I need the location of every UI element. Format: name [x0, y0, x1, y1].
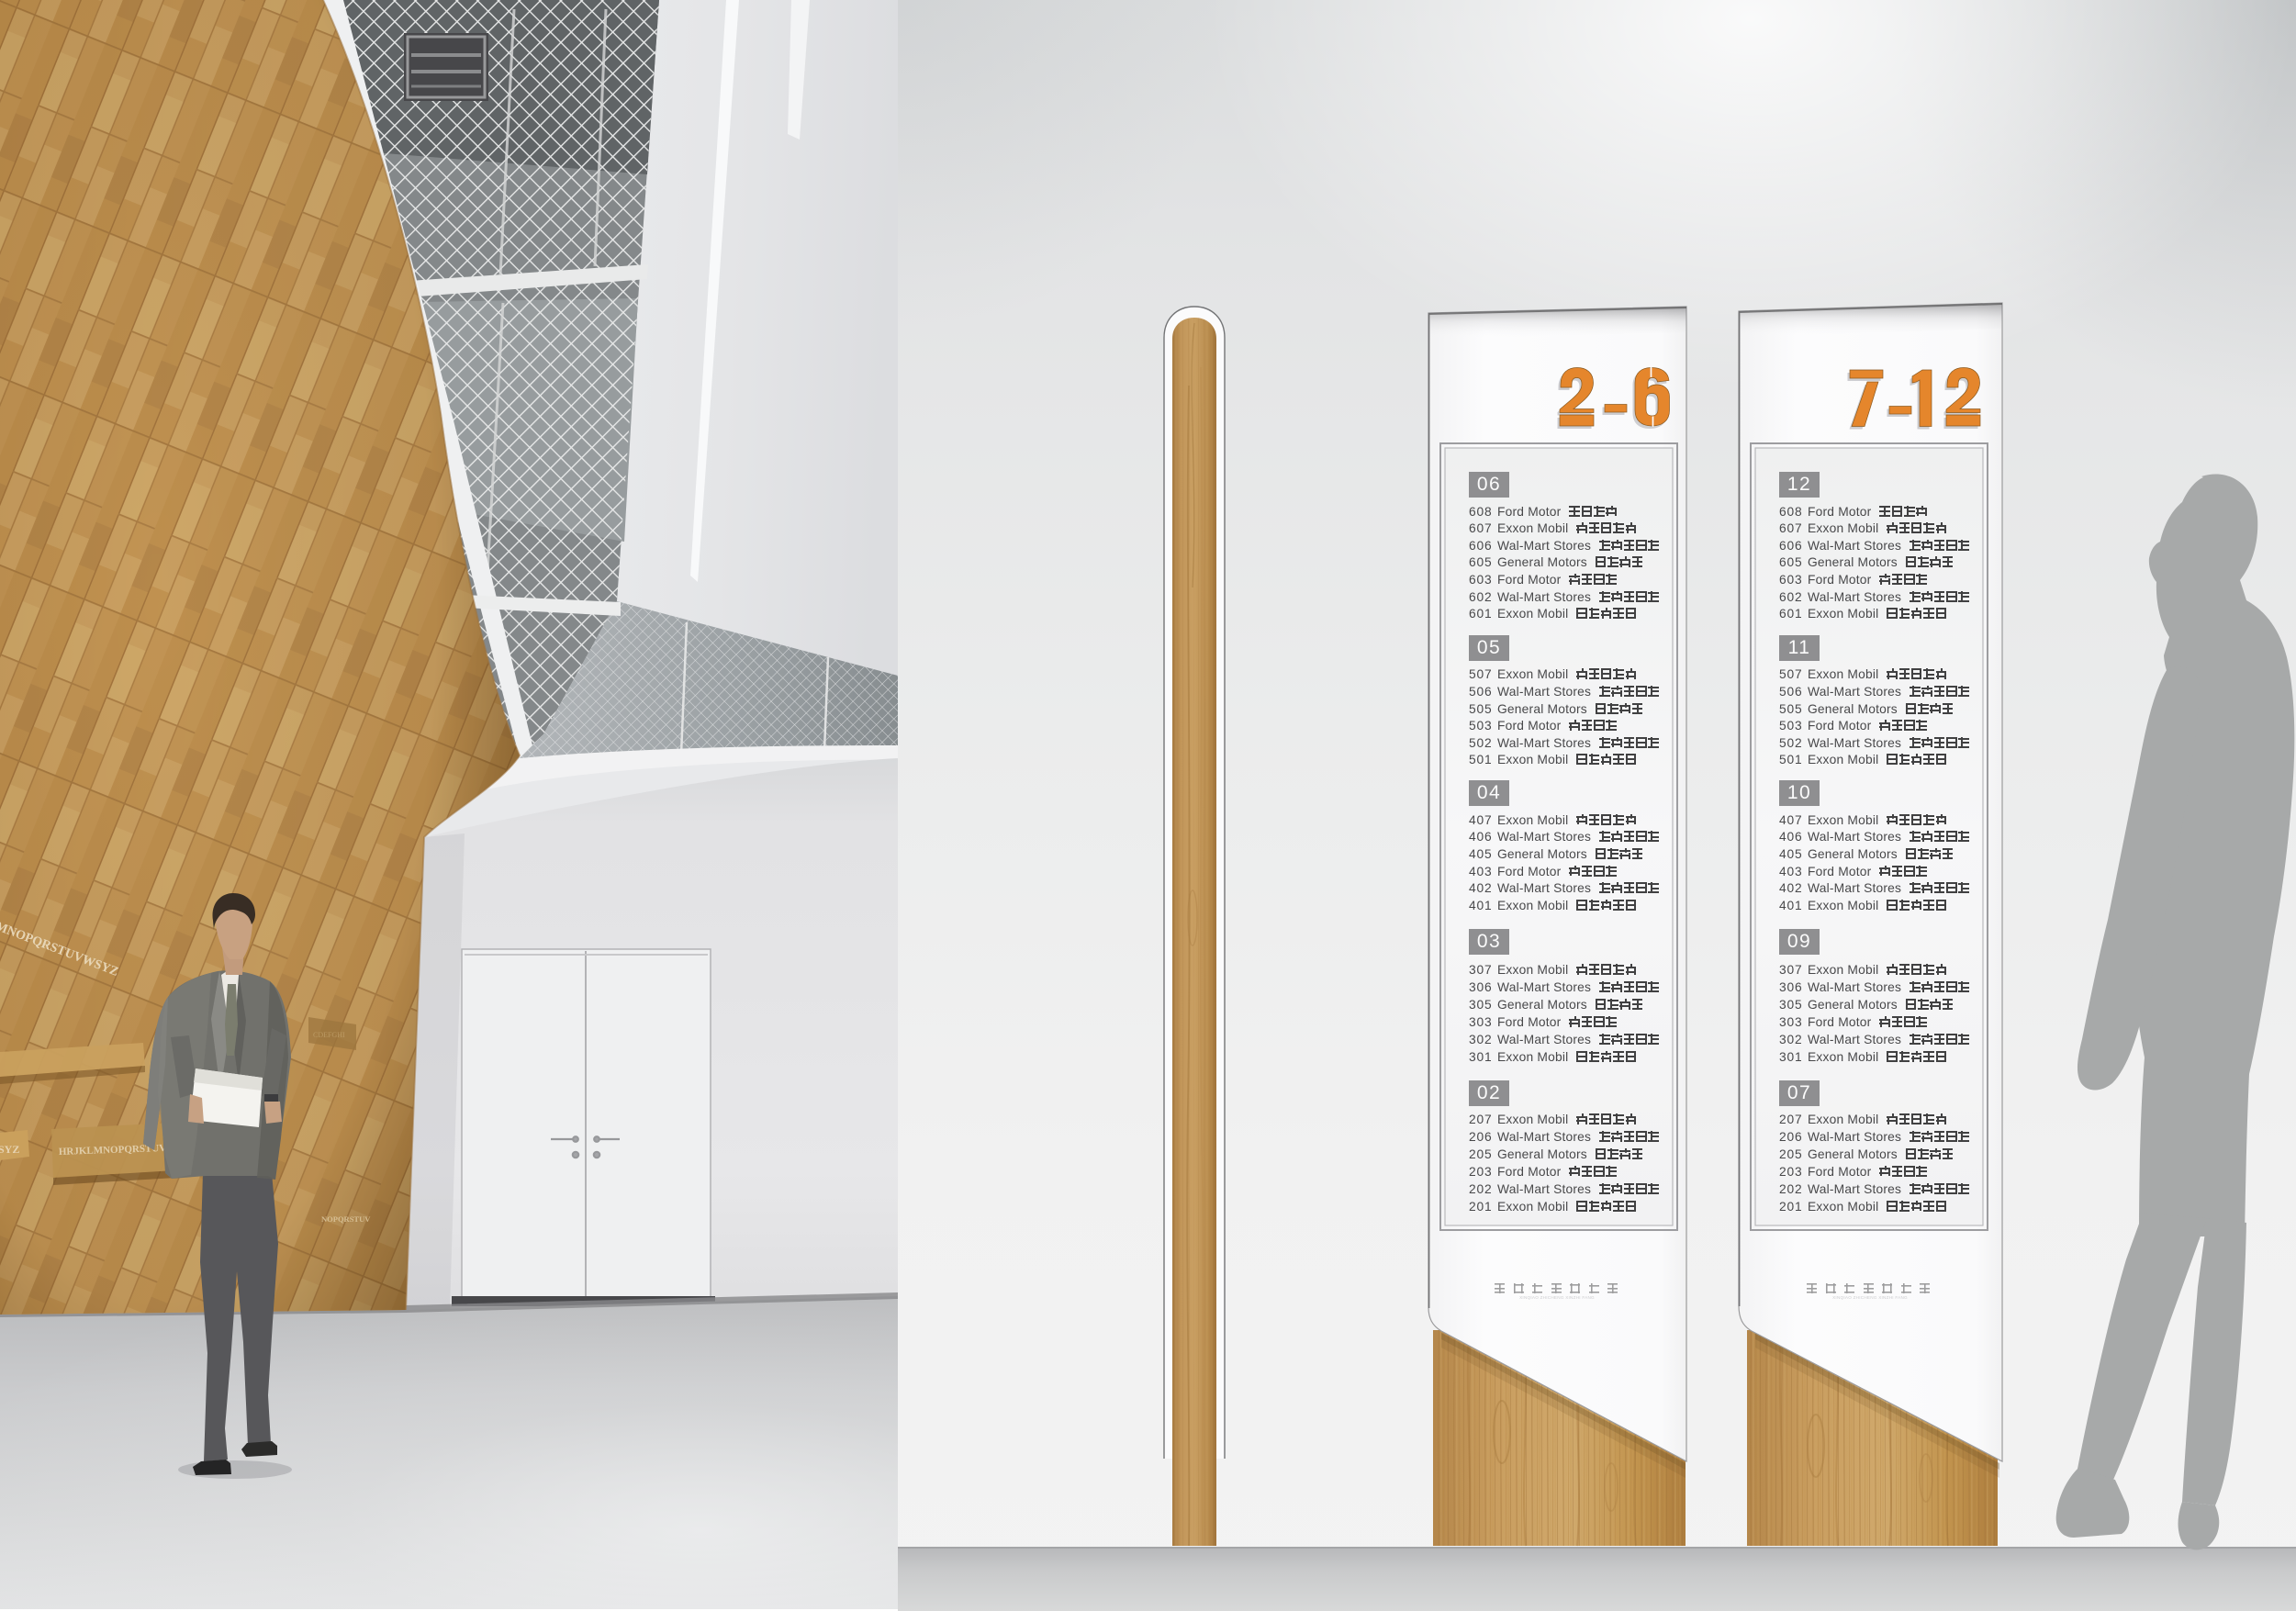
svg-text:SYZ: SYZ	[0, 1143, 19, 1156]
svg-text:NOPQRSTUV: NOPQRSTUV	[321, 1214, 371, 1224]
svg-text:CDEFGHI: CDEFGHI	[313, 1031, 345, 1039]
